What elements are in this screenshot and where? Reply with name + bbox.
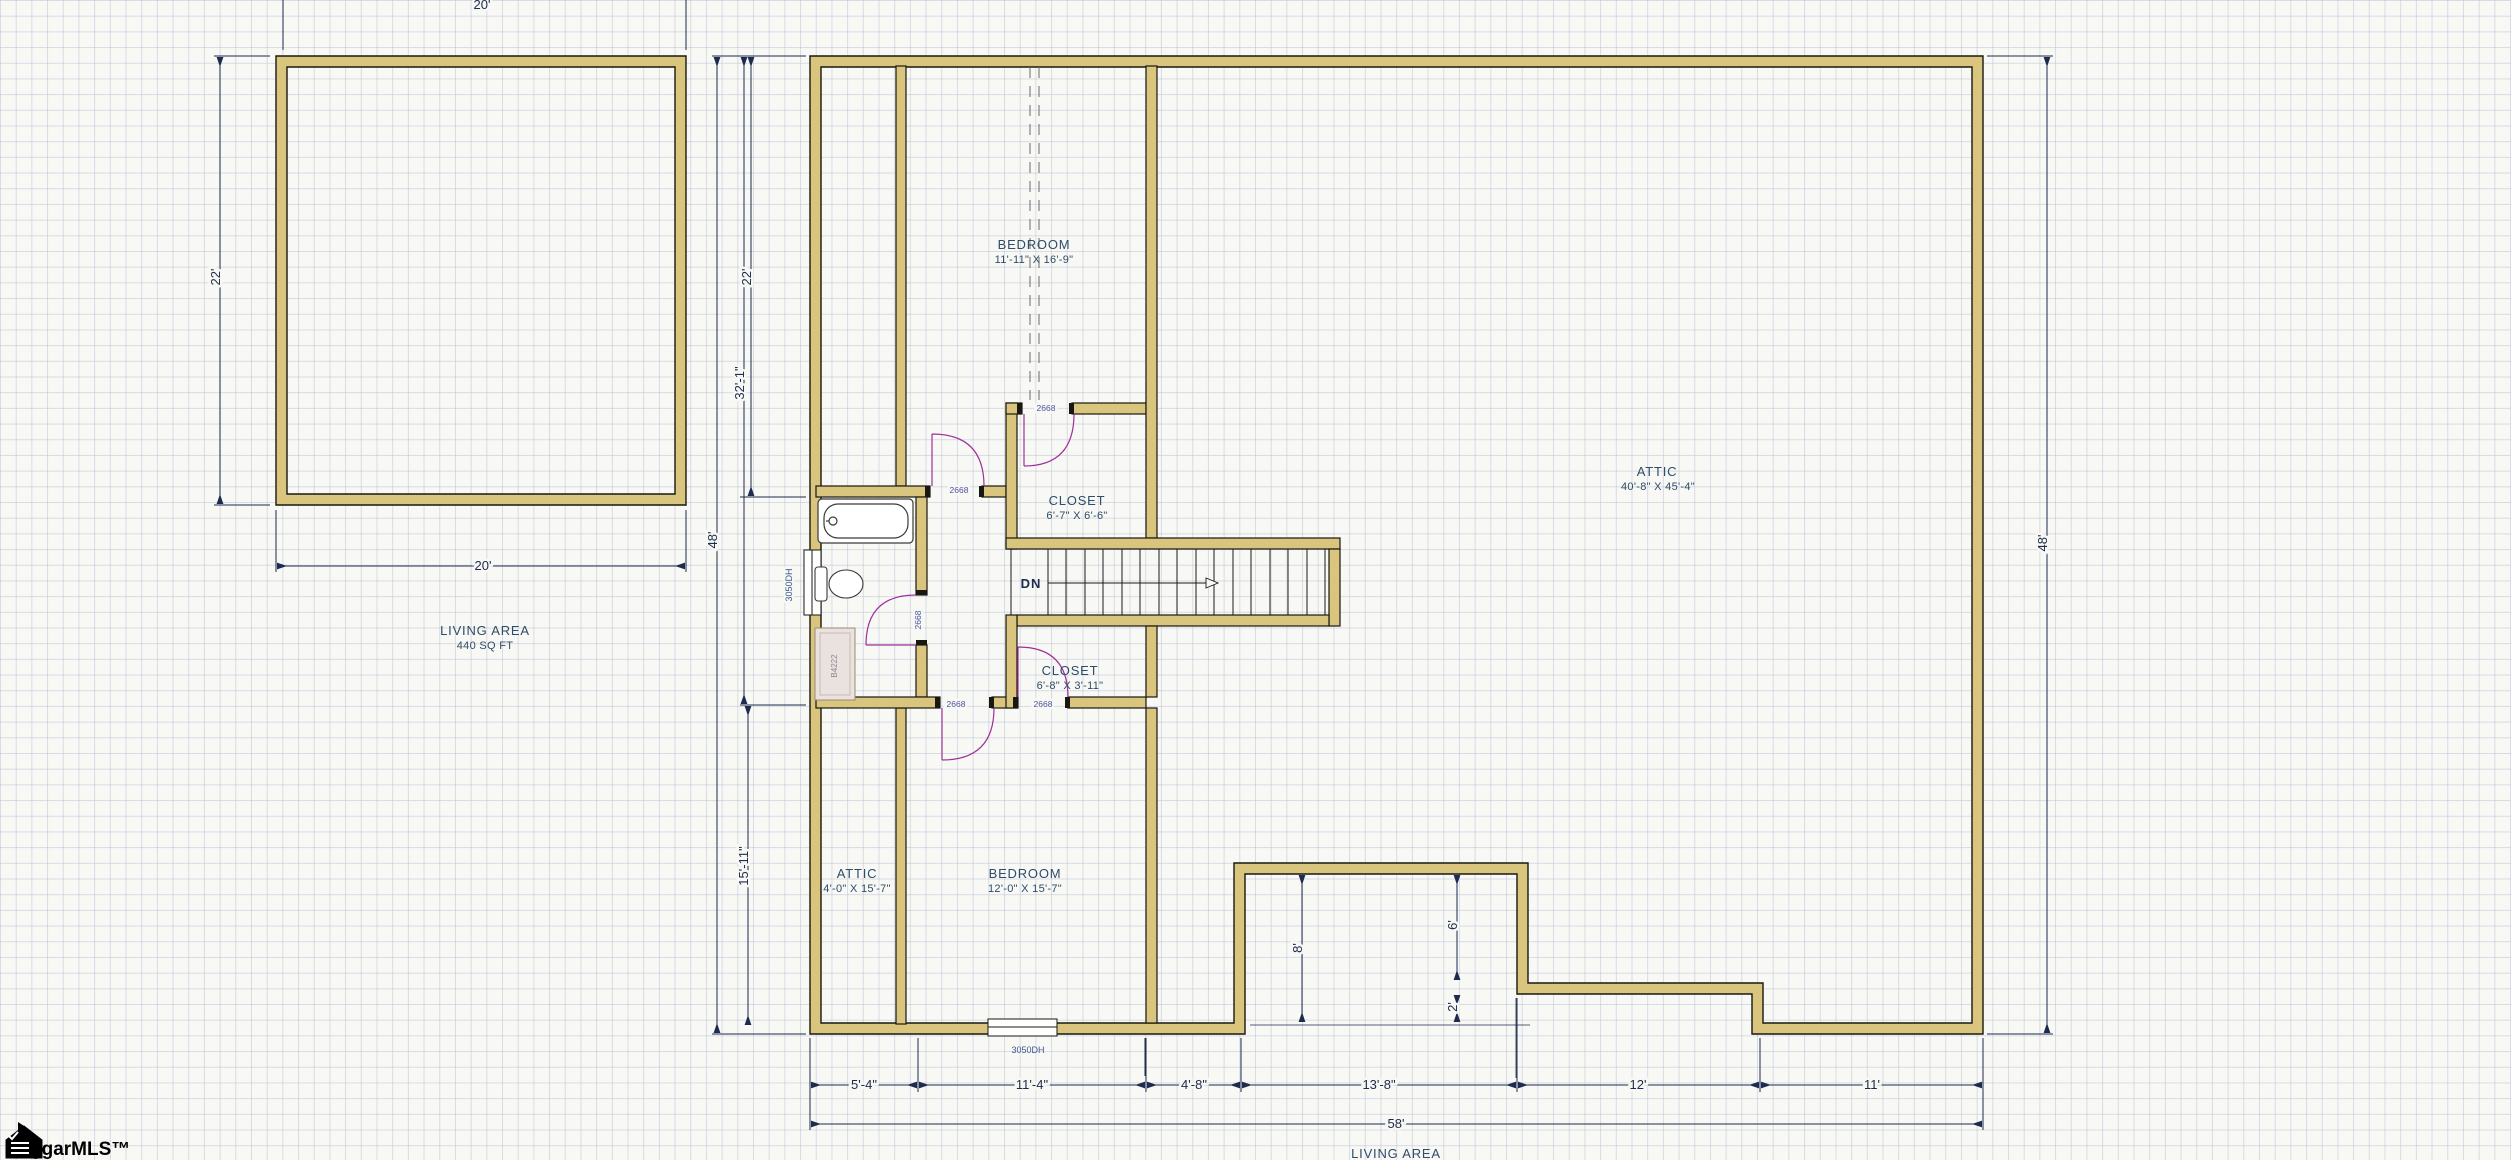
left-unit-area-title: LIVING AREA — [440, 623, 530, 638]
stairs — [1011, 549, 1325, 615]
dim-bottom-4-8: 4'-8" — [1181, 1077, 1207, 1092]
dim-bottom-12: 12' — [1630, 1077, 1647, 1092]
dim-left-unit-bottom: 20' — [475, 558, 492, 573]
main-unit-area-title: LIVING AREA — [1351, 1146, 1441, 1160]
dim-right-48: 48' — [2035, 535, 2050, 552]
vanity-label: B4222 — [830, 654, 839, 678]
room-attic-main-name: ATTIC — [1637, 464, 1678, 479]
door-label-bedroom-bottom: 2668 — [947, 699, 966, 709]
dim-left-unit-top: 20' — [474, 0, 491, 12]
dim-left-15-11: 15'-11" — [736, 846, 751, 886]
door-label-bedroom-top: 2668 — [950, 485, 969, 495]
dim-bottom-13-8: 13'-8" — [1362, 1077, 1396, 1092]
main-unit-dimension-lines — [712, 56, 2053, 1130]
room-bedroom-bottom-size: 12'-0" X 15'-7" — [988, 883, 1062, 895]
floorplan-canvas: 20' 22' 20' LIVING AREA 440 SQ FT — [0, 0, 2511, 1160]
dim-notch-2: 2' — [1445, 1002, 1460, 1012]
room-attic-main-size: 40'-8" X 45'-4" — [1621, 481, 1695, 493]
stairs-direction-label: DN — [1021, 576, 1042, 591]
dim-left-22: 22' — [739, 269, 754, 286]
room-bedroom-top-name: BEDROOM — [998, 237, 1071, 252]
main-unit-exterior-walls — [810, 56, 1983, 1034]
floorplan-drawing: 20' 22' 20' LIVING AREA 440 SQ FT — [0, 0, 2511, 1160]
room-attic-strip-name: ATTIC — [837, 866, 878, 881]
room-attic-strip-size: 4'-0" X 15'-7" — [823, 883, 891, 895]
dim-bottom-total-58: 58' — [1388, 1116, 1405, 1131]
watermark-text: ggarMLS™ — [30, 1139, 130, 1160]
dim-bottom-11: 11' — [1864, 1077, 1880, 1092]
room-closet-top-name: CLOSET — [1049, 493, 1106, 508]
ceiling-break-lines — [1030, 67, 1039, 400]
dim-left-unit-left: 22' — [208, 269, 223, 286]
left-unit-walls — [276, 56, 686, 505]
dim-notch-6: 6' — [1445, 920, 1460, 930]
window-label-left: 3050DH — [784, 568, 794, 601]
door-label-closet-bottom: 2668 — [1034, 699, 1053, 709]
room-closet-top-size: 6'-7" X 6'-6" — [1046, 510, 1107, 522]
left-unit-area-sqft: 440 SQ FT — [457, 640, 514, 652]
room-bedroom-top-size: 11'-11" X 16'-9" — [995, 254, 1074, 266]
room-closet-bottom-size: 6'-8" X 3'-11" — [1037, 680, 1104, 692]
dim-left-32-1: 32'-1" — [732, 366, 747, 400]
watermark: ggarMLS™ — [6, 1122, 130, 1160]
dim-notch-8: 8' — [1290, 943, 1305, 953]
door-label-bathroom: 2668 — [913, 610, 923, 629]
toilet — [815, 567, 863, 601]
room-closet-bottom-name: CLOSET — [1042, 663, 1099, 678]
window-label-bottom: 3050DH — [1011, 1045, 1044, 1055]
dim-bottom-5-4: 5'-4" — [851, 1077, 877, 1092]
main-unit-interior-walls — [816, 66, 1340, 1024]
room-bedroom-bottom-name: BEDROOM — [989, 866, 1062, 881]
dim-left-48: 48' — [705, 532, 720, 549]
room-labels: BEDROOM 11'-11" X 16'-9" CLOSET 6'-7" X … — [823, 237, 1695, 895]
dim-bottom-11-4: 11'-4" — [1016, 1077, 1049, 1092]
door-label-closet-top: 2668 — [1037, 403, 1056, 413]
bathtub — [818, 499, 913, 543]
